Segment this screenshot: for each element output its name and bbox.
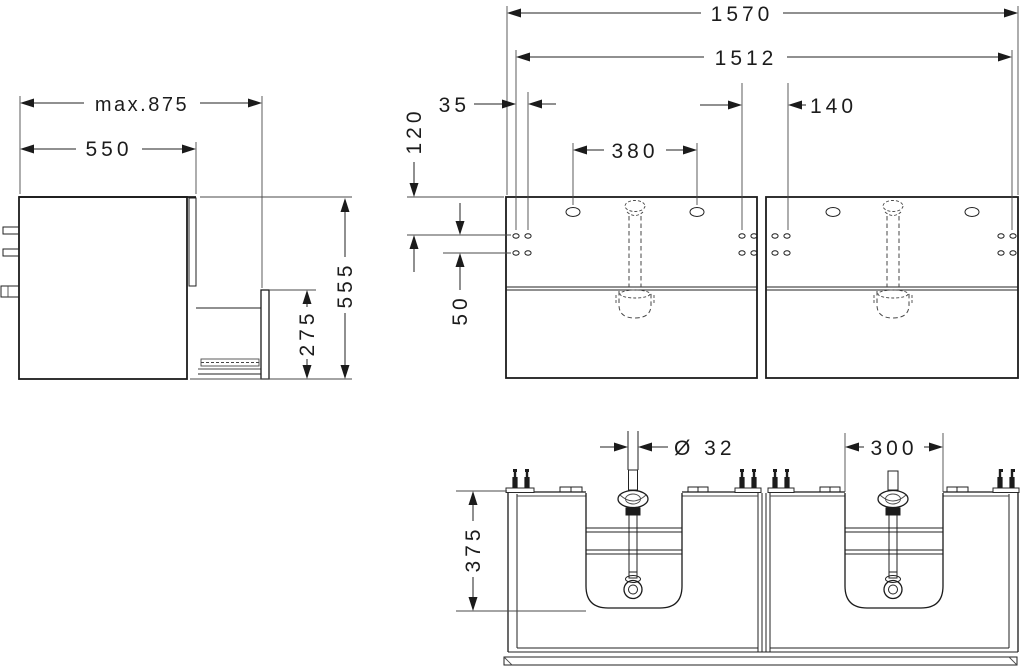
siphon-flange [878, 491, 908, 508]
dim-max-pullout-label: max.875 [95, 94, 189, 116]
bolt-plate [768, 488, 794, 493]
side-view: max.875 550 555 275 [1, 94, 357, 379]
arrowhead-down [341, 365, 350, 379]
dim-mounting-span: 1512 [516, 47, 1012, 230]
bolt-plate [506, 488, 534, 493]
arrowhead-right [614, 443, 628, 452]
bolt [512, 469, 1015, 488]
dim-center-spacing-label: 140 [810, 95, 857, 118]
arrowhead-right [182, 145, 196, 154]
arrowhead-up [456, 253, 465, 267]
dim-faucet-spacing: 380 [573, 140, 697, 205]
mounting-holes [513, 234, 1016, 255]
side-upper-drawer-front [189, 198, 196, 286]
dim-pipe-diameter-label: Ø 32 [674, 437, 736, 460]
gasket-band [886, 508, 901, 516]
dim-drawer-front-label: 275 [296, 309, 319, 356]
arrowhead-left [788, 101, 802, 110]
siphon-flange [618, 491, 648, 508]
arrowhead-up [341, 198, 350, 212]
dim-hole-row-gap: 50 [443, 203, 511, 326]
bottom-view: Ø 32 300 375 [456, 431, 1019, 665]
drain-outlet [884, 581, 902, 599]
dim-mounting-span-label: 1512 [715, 47, 778, 70]
dim-overall-width-label: 1570 [711, 3, 774, 26]
dim-cutout-depth-label: 375 [462, 525, 485, 572]
dim-cutout-width: 300 [845, 433, 943, 492]
side-lower-drawer-front-pulled [261, 290, 269, 379]
arrowhead-up [469, 491, 478, 505]
oval-hole [826, 208, 840, 217]
arrowhead-left [845, 443, 859, 452]
panel-tab [947, 487, 968, 492]
panel-tab [688, 487, 708, 492]
side-cabinet-body [19, 197, 187, 379]
arrowhead-left [528, 100, 542, 109]
dim-overall-width: 1570 [507, 3, 1018, 195]
drain-pipe-right [878, 471, 908, 599]
arrowhead-down [410, 183, 419, 197]
arrowhead-right [998, 53, 1012, 62]
arrowhead-down [469, 597, 478, 611]
dim-drawer-front-height: 275 [269, 290, 319, 379]
dim-depth: 550 [20, 138, 196, 194]
plinth-strip [504, 657, 1017, 665]
arrowhead-left [516, 53, 530, 62]
arrowhead-down [456, 221, 465, 235]
pipe-coupling [888, 471, 898, 490]
dim-cutout-width-label: 300 [870, 437, 917, 460]
dim-top-to-hole-label: 120 [403, 107, 426, 154]
bolt-plate [993, 488, 1019, 493]
dim-height: 555 [190, 197, 357, 379]
arrowhead-right [728, 101, 742, 110]
dim-pipe-diameter: Ø 32 [600, 437, 736, 460]
arrowhead-up [410, 235, 419, 249]
oval-hole [965, 208, 979, 217]
arrowhead-right [248, 99, 262, 108]
hidden-siphon-left [616, 201, 654, 319]
plinth-corner [1009, 657, 1017, 665]
arrowhead-left [573, 146, 587, 155]
arrowhead-down [303, 365, 312, 379]
arrowhead-up [303, 290, 312, 304]
arrowhead-left [20, 99, 34, 108]
panel-tab [560, 487, 582, 492]
arrowhead-right [1004, 9, 1018, 18]
dim-faucet-spacing-label: 380 [611, 140, 658, 163]
panel-tab [820, 487, 840, 492]
oval-hole [566, 208, 580, 217]
wall-bracket-lower [3, 249, 19, 256]
dim-hole-pair-label: 35 [439, 94, 470, 117]
hidden-siphon-right [874, 201, 912, 319]
plinth-corner [504, 657, 512, 665]
dim-height-label: 555 [334, 261, 357, 308]
drawer-rail [201, 359, 259, 366]
oval-hole [690, 208, 704, 217]
dim-cutout-depth: 375 [456, 491, 586, 611]
arrowhead-right [502, 100, 516, 109]
dim-hole-pair-spacing: 35 [439, 92, 556, 230]
mounting-bolts [506, 469, 1019, 493]
wall-drain-stub [1, 286, 19, 297]
arrowhead-left [20, 145, 34, 154]
pipe-coupling [629, 470, 638, 490]
dim-depth-label: 550 [85, 138, 132, 161]
bolt-plate [735, 488, 761, 493]
arrowhead-right [683, 146, 697, 155]
vanity-dimension-drawing: max.875 550 555 275 [0, 0, 1024, 671]
dim-top-to-hole: 120 [403, 107, 511, 272]
dim-hole-row-gap-label: 50 [449, 294, 472, 325]
arrowhead-left [507, 9, 521, 18]
wall-bracket-upper [3, 227, 19, 234]
drain-pipe-left [618, 431, 648, 599]
drain-outlet [624, 581, 642, 599]
dim-max-pullout: max.875 [20, 94, 262, 288]
technical-drawing-page: max.875 550 555 275 [0, 0, 1024, 671]
arrowhead-left [638, 443, 652, 452]
gasket-band [626, 508, 641, 516]
arrowhead-right [929, 443, 943, 452]
front-view: 1570 1512 35 140 [403, 3, 1018, 378]
